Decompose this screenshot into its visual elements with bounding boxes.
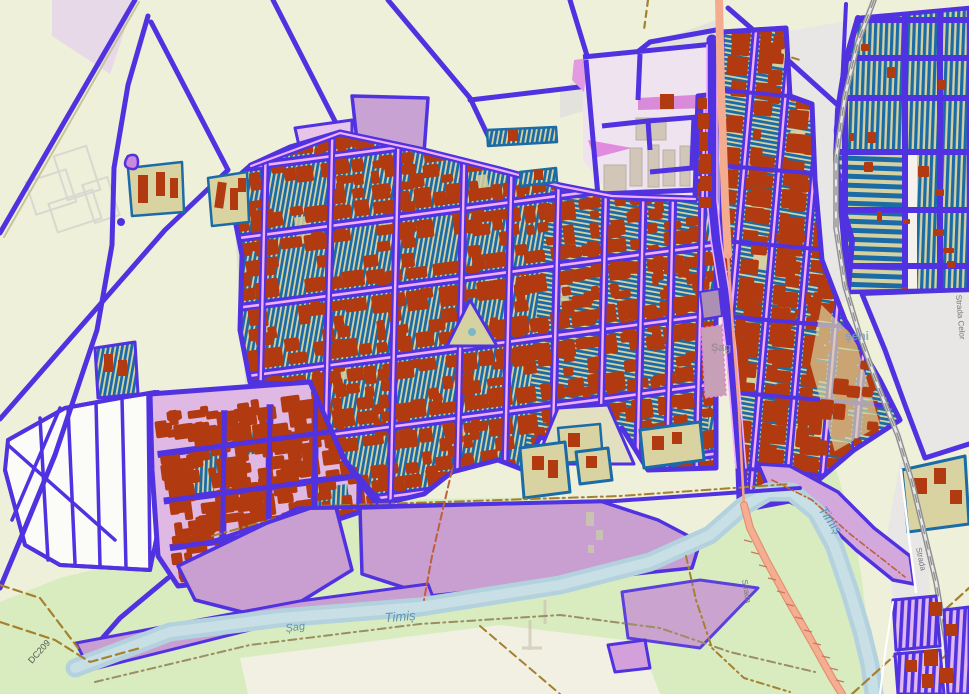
svg-text:Șag: Șag (711, 342, 731, 354)
svg-text:șeni: șeni (845, 329, 869, 343)
svg-text:Timiș: Timiș (384, 608, 416, 625)
